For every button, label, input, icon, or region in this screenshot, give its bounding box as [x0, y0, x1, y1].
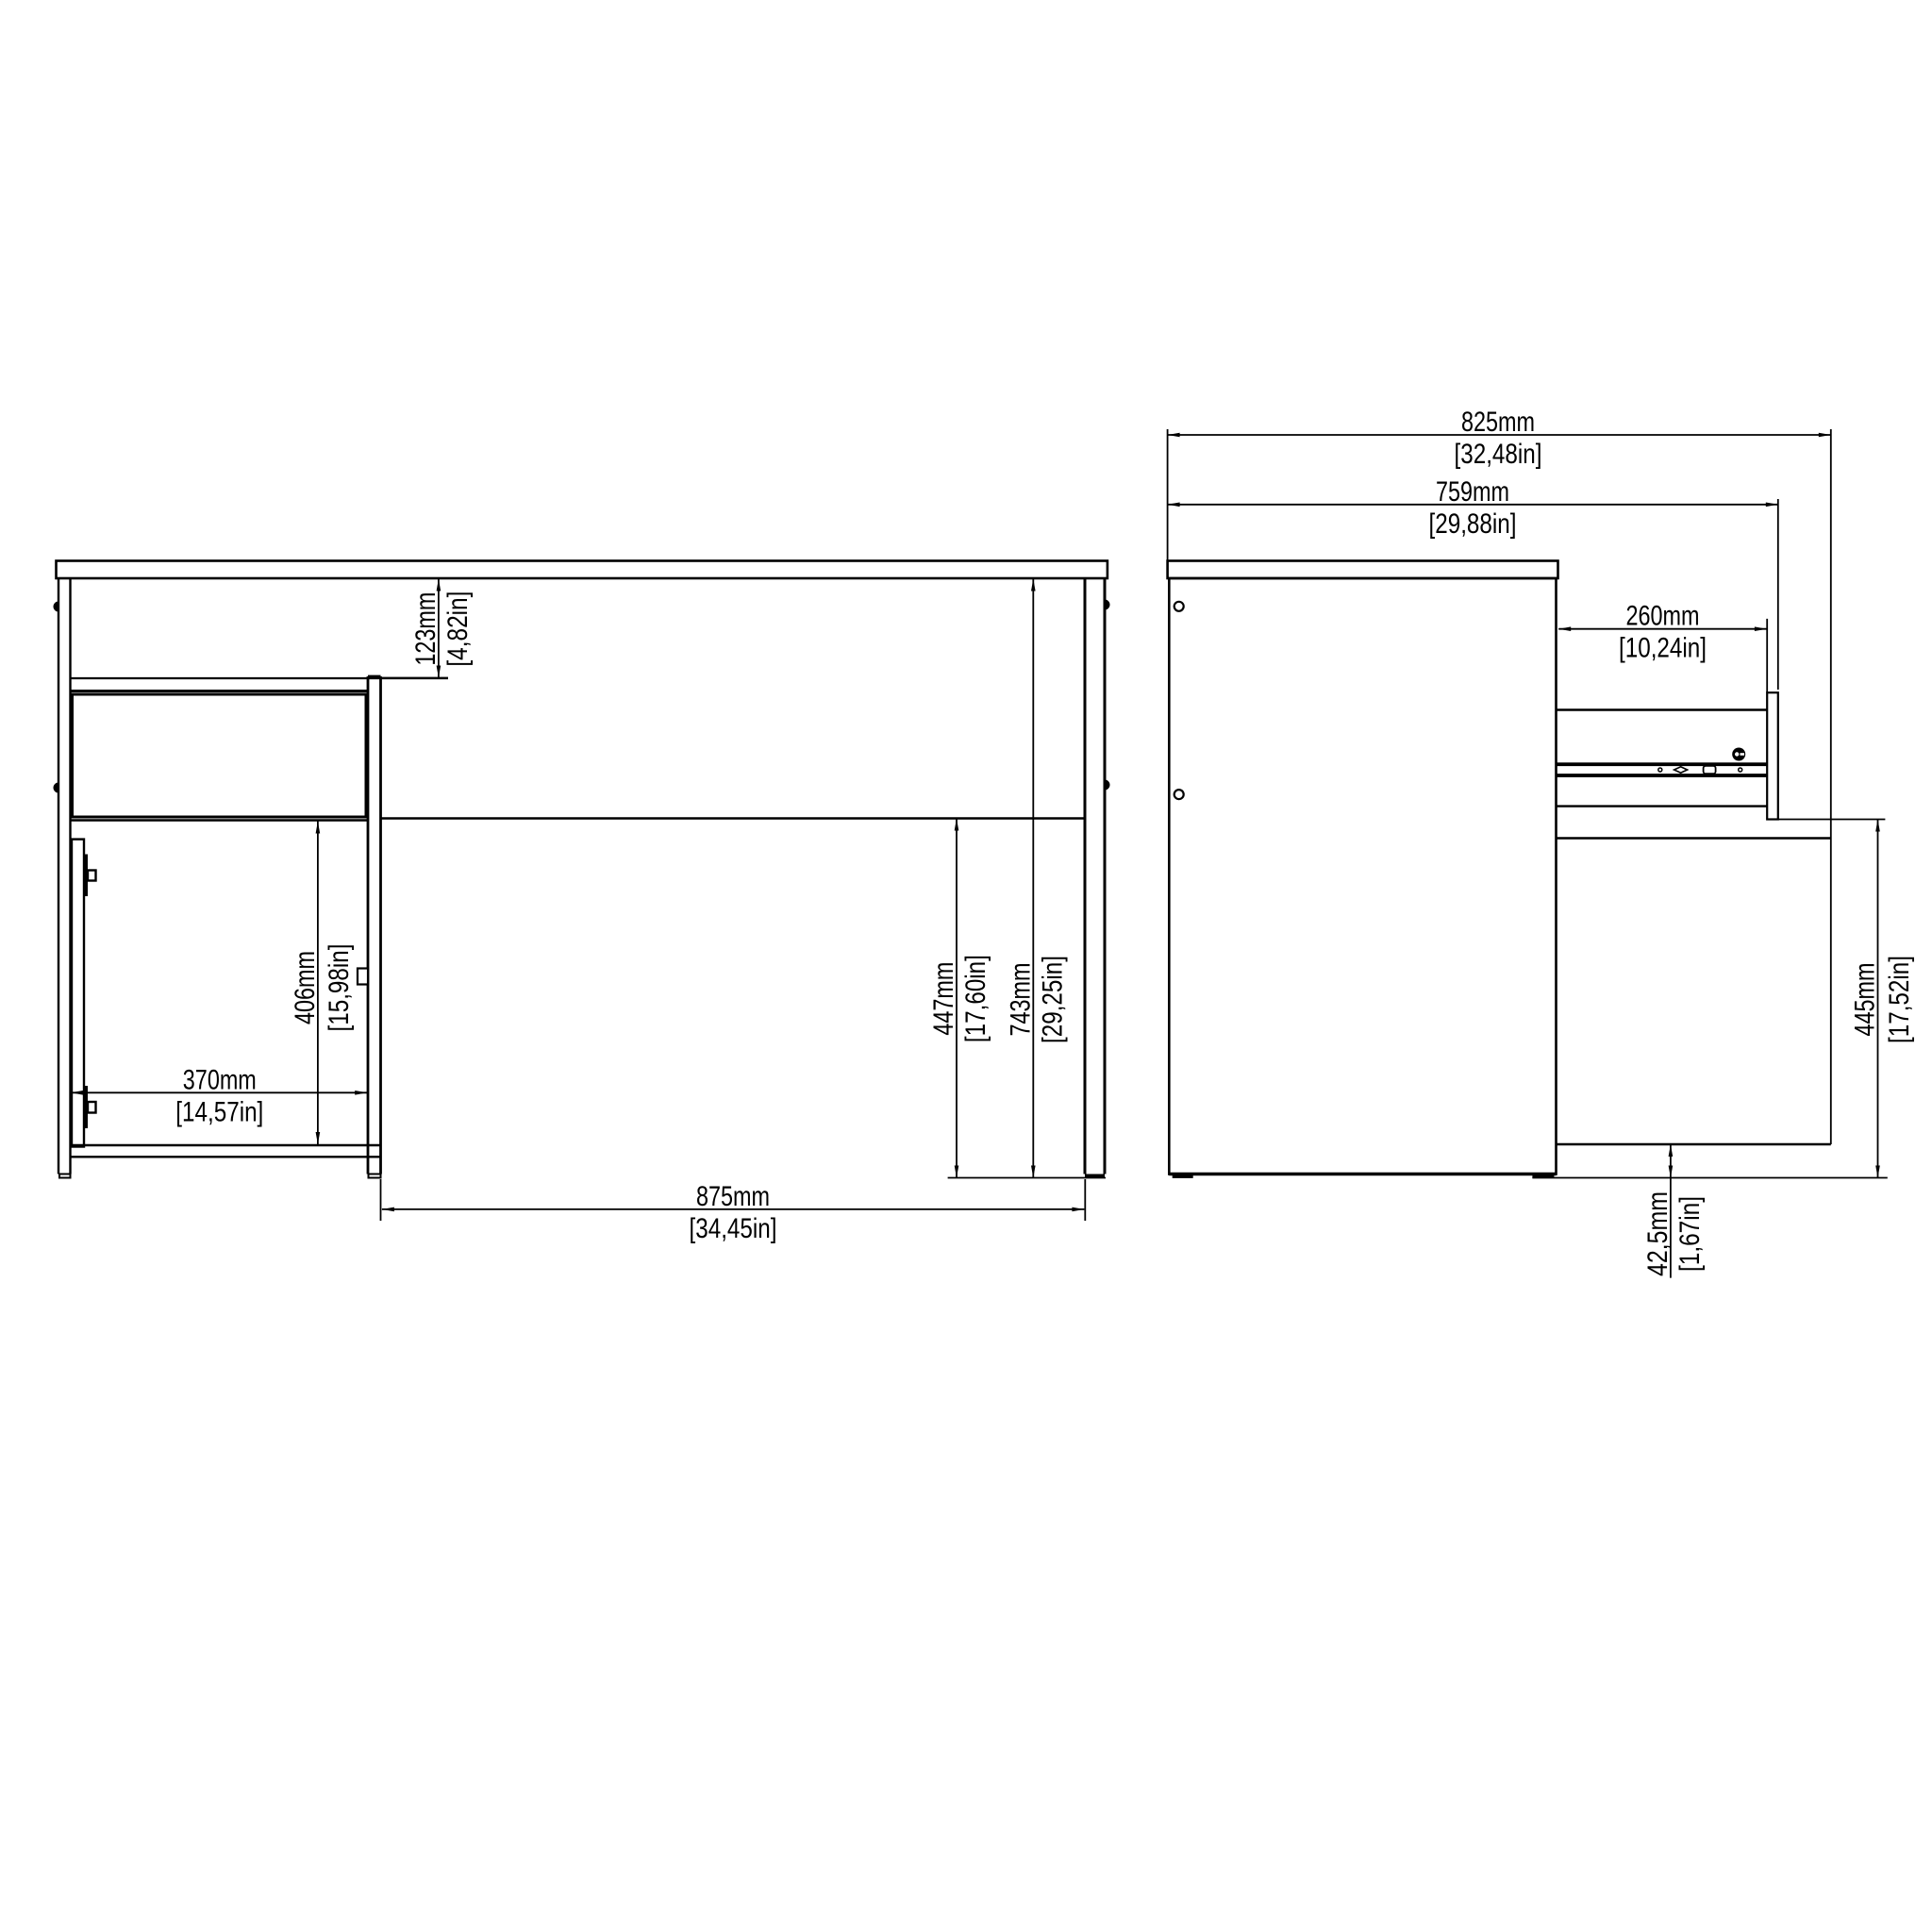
svg-text:825mm: 825mm	[1461, 407, 1535, 438]
svg-text:447mm: 447mm	[928, 962, 959, 1036]
svg-text:[4,82in]: [4,82in]	[442, 591, 474, 667]
svg-text:[29,88in]: [29,88in]	[1429, 508, 1517, 540]
svg-text:[14,57in]: [14,57in]	[175, 1096, 263, 1127]
svg-text:370mm: 370mm	[183, 1064, 257, 1095]
svg-text:260mm: 260mm	[1626, 601, 1700, 632]
svg-text:[32,48in]: [32,48in]	[1455, 439, 1542, 470]
svg-text:[34,45in]: [34,45in]	[690, 1213, 777, 1244]
svg-text:875mm: 875mm	[696, 1181, 770, 1212]
svg-text:[1,67in]: [1,67in]	[1674, 1196, 1706, 1272]
svg-text:406mm: 406mm	[290, 951, 321, 1024]
svg-text:[10,24in]: [10,24in]	[1619, 633, 1707, 664]
svg-text:[17,60in]: [17,60in]	[960, 955, 991, 1042]
svg-text:445mm: 445mm	[1850, 963, 1881, 1037]
svg-text:759mm: 759mm	[1436, 476, 1509, 508]
svg-text:[17,52in]: [17,52in]	[1884, 956, 1915, 1043]
svg-text:[15,98in]: [15,98in]	[324, 944, 355, 1032]
svg-text:42,5mm: 42,5mm	[1642, 1191, 1674, 1276]
svg-text:[29,25in]: [29,25in]	[1037, 956, 1068, 1043]
svg-text:123mm: 123mm	[410, 592, 441, 666]
svg-text:743mm: 743mm	[1005, 963, 1036, 1037]
